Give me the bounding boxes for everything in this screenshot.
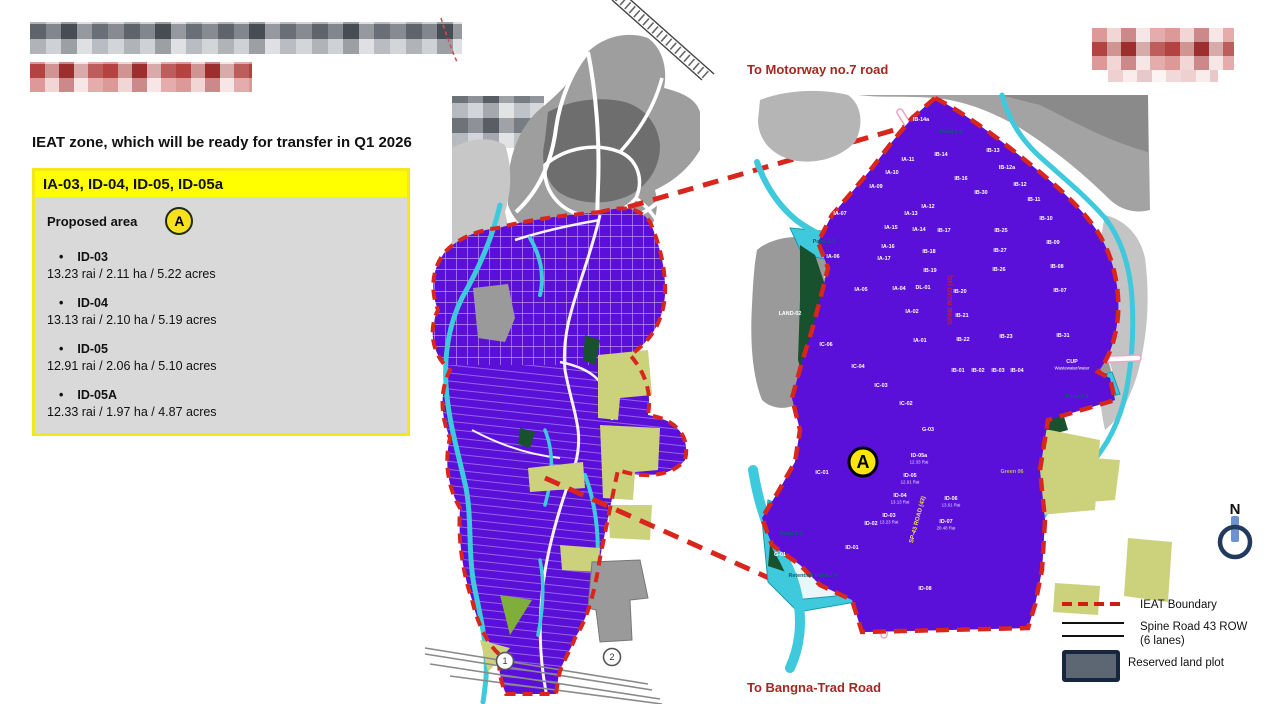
parcel-label: DL-01 (916, 285, 931, 291)
parcel-label: ID-05 (903, 473, 916, 479)
parcel-label: IC-04 (851, 364, 864, 370)
parcel-label: LAND-02 (779, 311, 802, 317)
parcel-label: IB-07 (1053, 288, 1066, 294)
road-label: SPINE ROAD (43) (948, 275, 954, 325)
slide: { "info_panel": { "heading": "IEAT zone,… (0, 0, 1269, 704)
parcel-label: IB-14a (913, 117, 930, 123)
parcel-label: IC-03 (874, 383, 887, 389)
minor-boundary-stub (441, 18, 457, 62)
parcel-label: IA-02 (905, 309, 918, 315)
parcel-label: IA-13 (904, 211, 917, 217)
parcel-label: IA-07 (833, 211, 846, 217)
reserved-plot-sample (1062, 650, 1120, 682)
legend-label: Spine Road 43 ROW (6 lanes) (1140, 620, 1247, 649)
parcel-label: IC-01 (815, 470, 828, 476)
parcel-label: IB-09 (1046, 240, 1059, 246)
overview-estate (425, 200, 715, 704)
parcel-label: Pond 2-3 (813, 239, 836, 245)
parcel-label: CUP (1066, 359, 1078, 365)
parcel-label: Pond 2-4 (1066, 394, 1089, 400)
parcel-label: IB-20 (953, 289, 966, 295)
parcel-label: ID-08 (918, 586, 931, 592)
parcel-label: IB-13 (986, 148, 999, 154)
parcel-label: IA-12 (921, 204, 934, 210)
parcel-label: IA-01 (913, 338, 926, 344)
parcel-label: IB-01 (951, 368, 964, 374)
parcel-sublabel: 20.48 Rai (937, 526, 956, 531)
parcel-sublabel: Wastewater/water (1055, 366, 1091, 371)
gray-land-nw (758, 91, 860, 162)
numbered-marker-label: 2 (609, 652, 614, 662)
numbered-marker-label: 1 (502, 656, 507, 666)
parcel-label: IB-14 (934, 152, 947, 158)
parcel-label: Retention Pond 2-4 (788, 573, 837, 579)
parcel-label: ID-01 (845, 545, 858, 551)
parcel-label: IB-17 (937, 228, 950, 234)
marker-a: A (849, 448, 877, 476)
parcel-label: IB-25 (994, 228, 1007, 234)
parcel-label: ID-07 (939, 519, 952, 525)
parcel-label: IB-03 (991, 368, 1004, 374)
marker-a-letter: A (857, 452, 870, 472)
parcel-label: IA-10 (885, 170, 898, 176)
parcel-label: IB-11 (1028, 197, 1041, 203)
parcel-label: IB-22 (956, 337, 969, 343)
parcel-label: IA-09 (869, 184, 882, 190)
parcel-label: IB-23 (999, 334, 1012, 340)
parcel-label: IB-16 (954, 176, 967, 182)
parcel-label: ID-06 (944, 496, 957, 502)
parcel-label: IB-19 (923, 268, 936, 274)
overview-map (425, 0, 715, 704)
parcel-label: IA-05 (854, 287, 867, 293)
parcel-label: IB-27 (993, 248, 1006, 254)
parcel-label: IC-06 (819, 342, 832, 348)
parcel-label: IA-11 (902, 157, 915, 163)
parcel-label: G-01 (774, 552, 786, 558)
dashed-line-sample (1062, 602, 1124, 606)
legend-row-boundary: IEAT Boundary (1062, 598, 1217, 612)
parcel-label: IB-12 (1013, 182, 1026, 188)
gray-plot-overview (588, 560, 648, 642)
parcel-sublabel: 13.61 Rai (942, 503, 961, 508)
parcel-sublabel: 12.91 Rai (901, 480, 920, 485)
double-line-sample (1062, 622, 1124, 637)
parcel-label: IB-04 (1010, 368, 1023, 374)
legend-label: IEAT Boundary (1140, 598, 1217, 612)
parcel-label: IA-15 (884, 225, 897, 231)
parcel-label: Pond 2-1 (780, 531, 803, 537)
parcel-label: IA-04 (892, 286, 905, 292)
legend-row-reserved: Reserved land plot (1062, 650, 1224, 682)
legend-row-spine-road: Spine Road 43 ROW (6 lanes) (1062, 620, 1247, 649)
parcel-label: IB-02 (971, 368, 984, 374)
parcel-label: IA-16 (881, 244, 894, 250)
parcel-label: IA-17 (877, 256, 890, 262)
parcel-label: Pond 2-2 (940, 129, 963, 135)
parcel-label: IB-10 (1039, 216, 1052, 222)
north-label: N (1230, 501, 1241, 518)
parcel-label: IB-31 (1056, 333, 1069, 339)
parcel-label: IA-14 (912, 227, 925, 233)
parcel-label: IB-30 (974, 190, 987, 196)
parcel-label: IC-02 (899, 401, 912, 407)
parcel-sublabel: 12.33 Rai (910, 460, 929, 465)
parcel-label: IB-26 (992, 267, 1005, 273)
parcel-label: IA-06 (826, 254, 839, 260)
parcel-label: ID-02 (864, 521, 877, 527)
parcel-label: IB-18 (922, 249, 935, 255)
legend-label: Reserved land plot (1128, 656, 1224, 670)
parcel-label: IB-21 (955, 313, 968, 319)
parcel-label: ID-05a (911, 453, 928, 459)
parcel-label: IB-12a (999, 165, 1016, 171)
parcel-label: Green 06 (1000, 469, 1023, 475)
parcel-label: G-03 (922, 427, 934, 433)
parcel-label: ID-04 (893, 493, 906, 499)
parcel-sublabel: 13.13 Rai (891, 500, 910, 505)
parcel-label: IB-08 (1050, 264, 1063, 270)
parcel-sublabel: 13.23 Rai (880, 520, 899, 525)
north-compass: N (1205, 498, 1265, 568)
parcel-label: ID-03 (882, 513, 895, 519)
